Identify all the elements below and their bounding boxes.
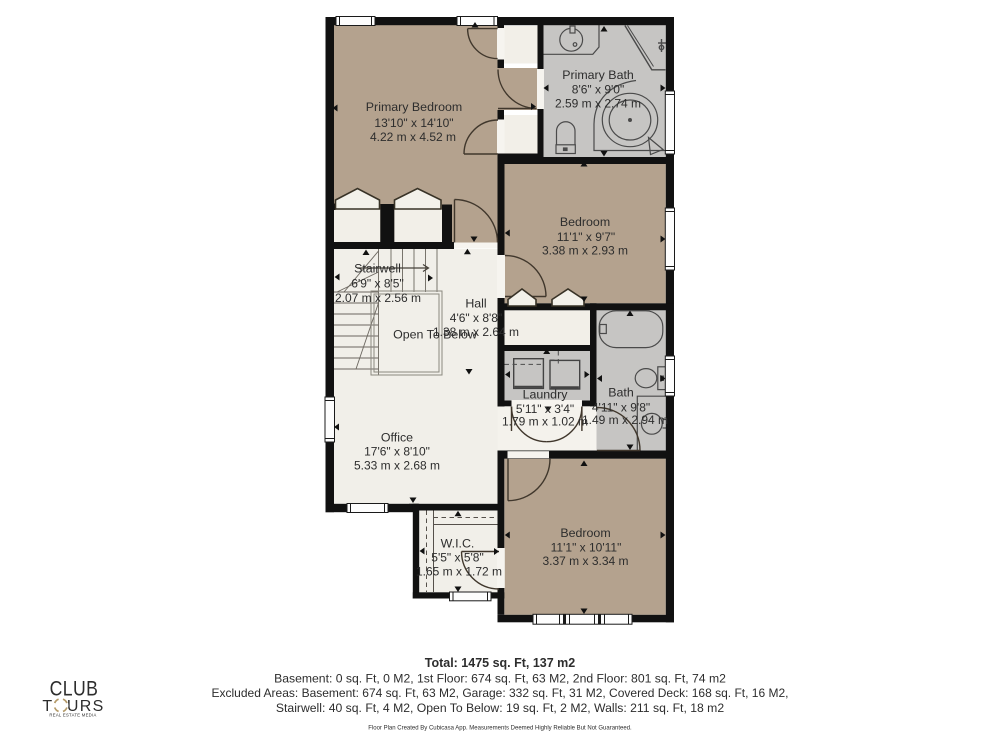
- svg-text:Bath: Bath: [608, 386, 634, 400]
- svg-text:17'6" x 8'10": 17'6" x 8'10": [364, 445, 430, 459]
- svg-text:8'6" x 9'0": 8'6" x 9'0": [572, 83, 624, 97]
- svg-text:5.33 m x 2.68 m: 5.33 m x 2.68 m: [354, 459, 440, 473]
- svg-text:1.49 m x 2.94 m: 1.49 m x 2.94 m: [582, 413, 668, 427]
- svg-text:11'1" x 9'7": 11'1" x 9'7": [557, 230, 615, 244]
- svg-text:6'9" x 8'5": 6'9" x 8'5": [351, 277, 403, 291]
- svg-text:W.I.C.: W.I.C.: [441, 537, 475, 551]
- svg-text:4'6" x 8'8": 4'6" x 8'8": [450, 311, 502, 325]
- svg-text:Open To Below: Open To Below: [393, 328, 477, 342]
- svg-text:Total: 1475 sq. Ft, 137 m2: Total: 1475 sq. Ft, 137 m2: [425, 656, 576, 670]
- svg-text:Stairwell: 40 sq. Ft, 4 M2, Op: Stairwell: 40 sq. Ft, 4 M2, Open To Belo…: [276, 701, 724, 715]
- svg-text:2.07 m x 2.56 m: 2.07 m x 2.56 m: [335, 291, 421, 305]
- svg-text:Bedroom: Bedroom: [560, 215, 610, 229]
- svg-text:Office: Office: [381, 431, 413, 445]
- svg-text:2.59 m x 2.74 m: 2.59 m x 2.74 m: [555, 97, 641, 111]
- svg-text:1.79 m x 1.02 m: 1.79 m x 1.02 m: [502, 415, 588, 429]
- svg-text:Bedroom: Bedroom: [560, 526, 610, 540]
- svg-text:4.22 m x 4.52 m: 4.22 m x 4.52 m: [370, 130, 456, 144]
- svg-text:11'1" x 10'11": 11'1" x 10'11": [551, 541, 622, 555]
- svg-text:Basement: 0 sq. Ft, 0 M2, 1st: Basement: 0 sq. Ft, 0 M2, 1st Floor: 674…: [274, 671, 726, 685]
- svg-text:Hall: Hall: [465, 297, 486, 311]
- svg-text:Laundry: Laundry: [523, 388, 569, 402]
- svg-text:REAL ESTATE MEDIA: REAL ESTATE MEDIA: [49, 713, 96, 718]
- svg-text:Floor Plan Created By Cubicasa: Floor Plan Created By Cubicasa App. Meas…: [368, 726, 632, 732]
- svg-text:1.65 m x 1.72 m: 1.65 m x 1.72 m: [416, 565, 502, 579]
- svg-text:Primary Bath: Primary Bath: [562, 68, 634, 82]
- svg-text:3.38 m x 2.93 m: 3.38 m x 2.93 m: [542, 244, 628, 258]
- svg-text:Primary Bedroom: Primary Bedroom: [366, 100, 462, 114]
- svg-text:3.37 m x 3.34 m: 3.37 m x 3.34 m: [542, 554, 628, 568]
- svg-text:Stairwell: Stairwell: [354, 262, 401, 276]
- svg-text:5'5" x 5'8": 5'5" x 5'8": [431, 551, 483, 565]
- svg-text:13'10" x 14'10": 13'10" x 14'10": [374, 116, 453, 130]
- svg-text:Excluded Areas: Basement: 674: Excluded Areas: Basement: 674 sq. Ft, 63…: [212, 686, 789, 700]
